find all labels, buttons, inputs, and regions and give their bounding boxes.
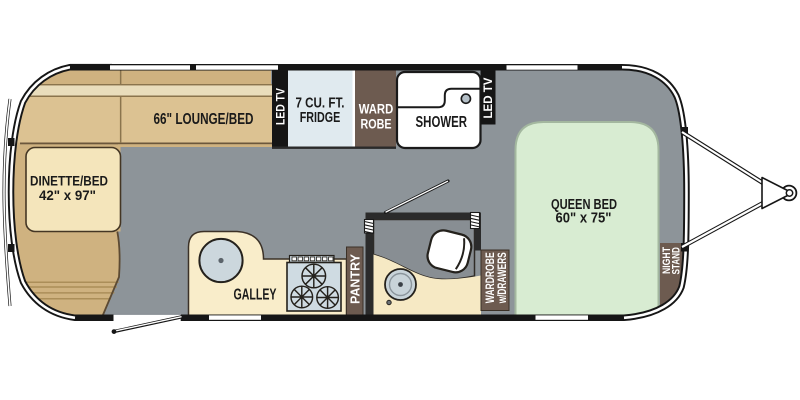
- svg-text:GALLEY: GALLEY: [234, 287, 278, 304]
- svg-text:STAND: STAND: [670, 247, 682, 275]
- svg-text:DINETTE/BED: DINETTE/BED: [30, 174, 108, 189]
- svg-text:42" x 97": 42" x 97": [39, 188, 96, 203]
- svg-text:WARD: WARD: [359, 102, 394, 118]
- svg-text:60" x 75": 60" x 75": [556, 211, 612, 227]
- svg-text:PANTRY: PANTRY: [347, 254, 362, 304]
- svg-text:66" LOUNGE/BED: 66" LOUNGE/BED: [154, 111, 254, 128]
- svg-text:LED TV: LED TV: [481, 78, 495, 119]
- svg-text:w/DRAWERS: w/DRAWERS: [495, 252, 509, 304]
- svg-text:SHOWER: SHOWER: [416, 114, 468, 131]
- svg-text:ROBE: ROBE: [361, 117, 392, 133]
- svg-text:FRIDGE: FRIDGE: [300, 110, 341, 126]
- svg-text:LED TV: LED TV: [273, 87, 287, 125]
